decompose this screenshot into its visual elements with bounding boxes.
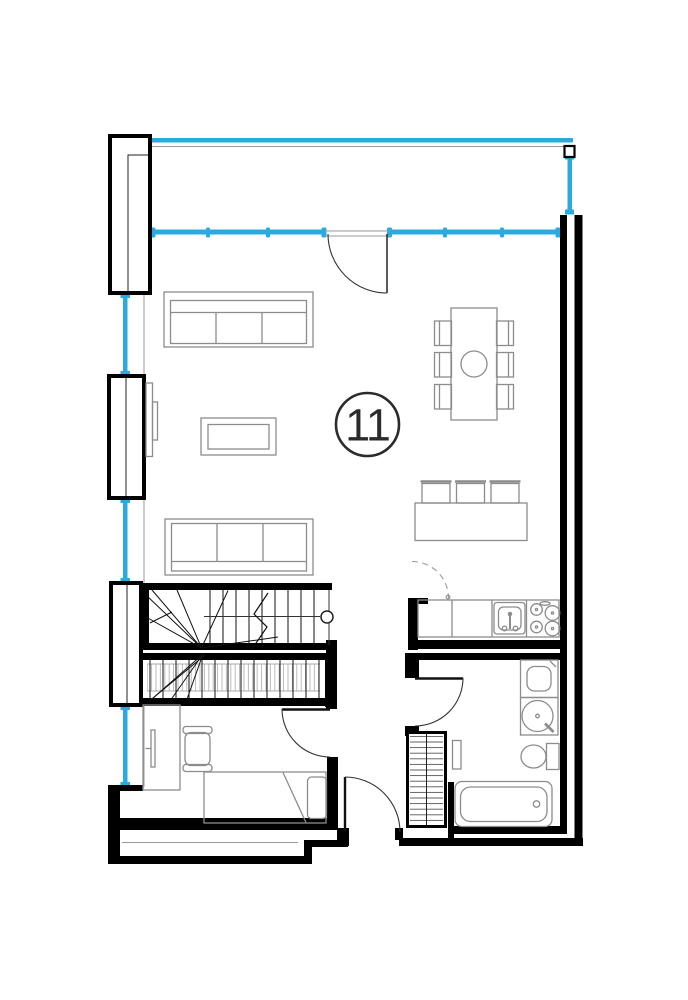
dining-table [451,308,497,420]
entry-door-swing [345,777,400,832]
side-window-3 [121,705,131,787]
vanity-basin [521,698,559,736]
balcony-door [328,234,387,293]
balcony-side-glazing [568,157,573,214]
balcony-door-swing [328,234,387,293]
coffee-table [201,418,276,455]
washing-machine [521,660,559,698]
sofa-bottom [165,519,313,575]
kitchen-bath-wall [408,640,567,649]
entry-door [345,777,400,832]
cooktop [531,602,560,636]
dining-chairs [435,321,514,409]
bedroom-door-swing [282,709,330,757]
desk [143,705,180,790]
kitchen-sink [494,603,525,635]
bed [204,772,327,823]
floor-plan-drawing: 11 [0,0,688,1000]
monitor [146,730,156,767]
window-band-left [152,230,325,235]
right-wall-outer [575,215,583,846]
bathroom-door [415,678,463,726]
bath-shelf [453,741,462,770]
pier-3 [111,583,141,705]
toilet [521,744,559,770]
appliance-swing [412,562,450,599]
bathtub [455,782,552,827]
unit-label: 11 [336,393,399,456]
side-window-2 [121,498,131,583]
office-chair [183,727,212,772]
sofa-top [164,292,313,347]
balcony-rail-band [152,138,573,143]
bedroom-door [282,709,330,757]
lower-flight-hatch [147,664,320,691]
service-shaft [408,733,446,827]
floor-plan-page: 11 [0,0,688,1000]
stair-newel-post [321,611,333,623]
right-wall-inner [560,215,567,834]
furniture [143,292,560,827]
window-band-right [389,230,559,235]
side-window-1 [121,293,131,376]
kitchen-counter [418,600,559,637]
tv [146,383,158,457]
bathroom-door-swing [415,678,463,726]
pier-1 [110,136,150,293]
balcony-corner-post [565,146,575,157]
unit-number: 11 [345,400,390,451]
kitchen-island [415,482,527,541]
interior-face-lines [122,147,568,843]
